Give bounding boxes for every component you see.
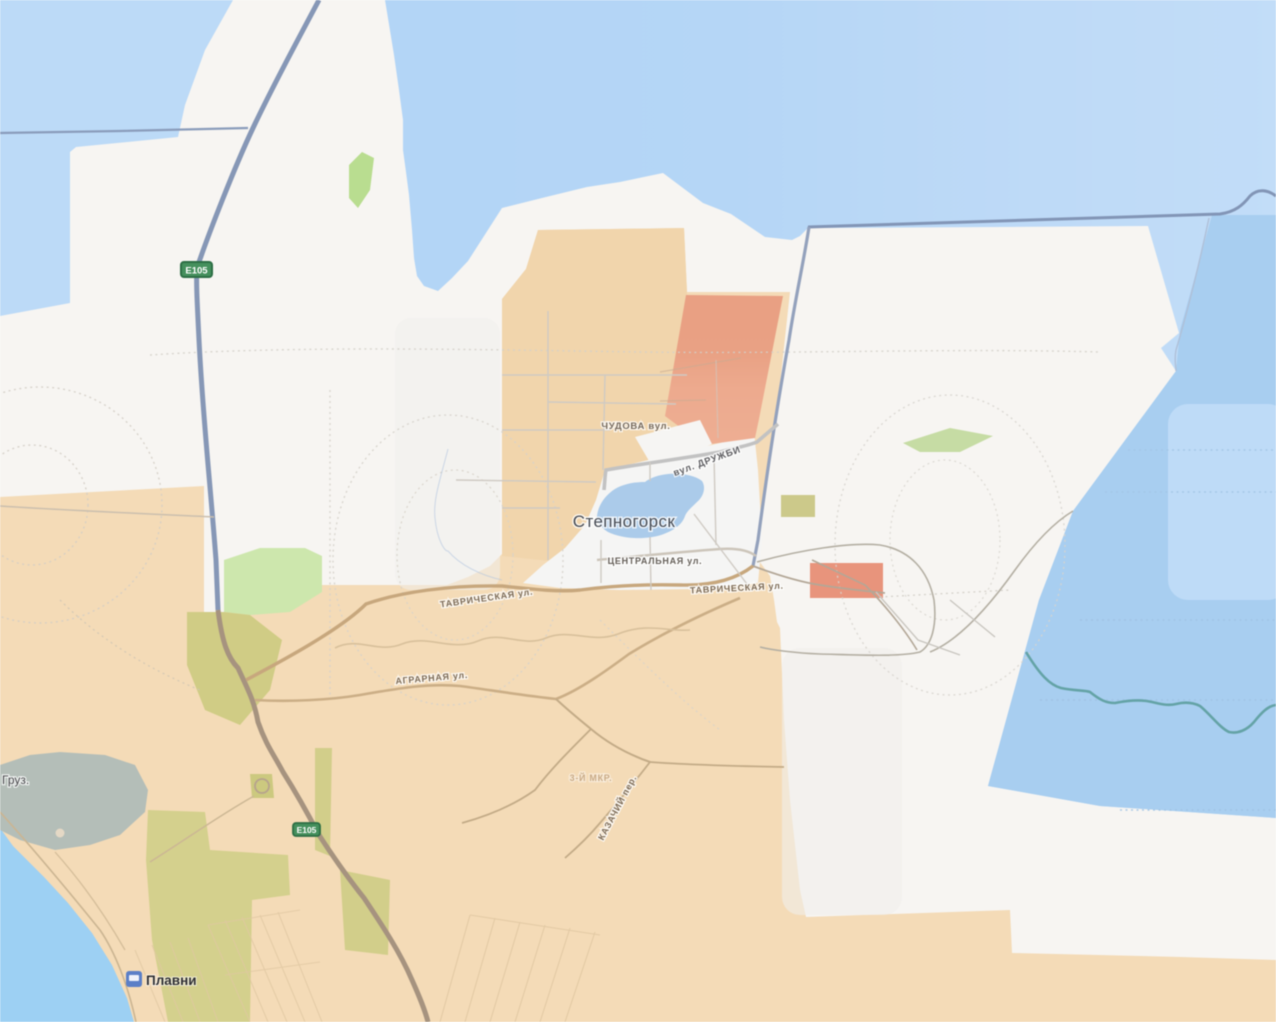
svg-text:Плавни: Плавни [146, 973, 197, 988]
svg-text:3-Й МКР.: 3-Й МКР. [570, 772, 613, 783]
svg-text:ЧУДОВА вул.: ЧУДОВА вул. [601, 421, 670, 432]
svg-text:Груз.: Груз. [2, 773, 29, 787]
svg-text:E105: E105 [297, 825, 317, 835]
svg-text:E105: E105 [185, 266, 208, 277]
svg-text:ЦЕНТРАЛЬНАЯ ул.: ЦЕНТРАЛЬНАЯ ул. [608, 556, 703, 566]
svg-text:Степногорск: Степногорск [573, 512, 676, 531]
